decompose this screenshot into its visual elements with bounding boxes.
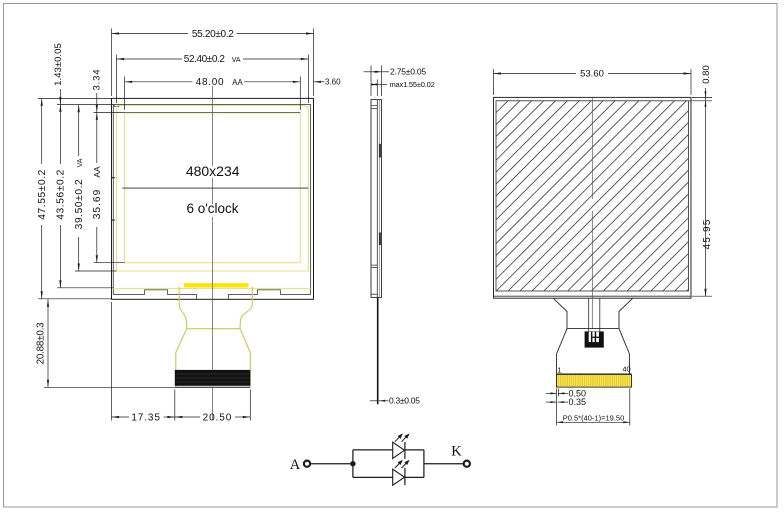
svg-text:52.40±0.2: 52.40±0.2: [184, 54, 226, 65]
svg-text:0.35: 0.35: [569, 397, 587, 407]
svg-text:2.75±0.05: 2.75±0.05: [390, 66, 426, 76]
svg-text:AA: AA: [232, 78, 243, 87]
svg-text:1.43±0.05: 1.43±0.05: [53, 43, 64, 86]
svg-text:0.3±0.05: 0.3±0.05: [389, 396, 420, 406]
svg-text:43.56±0.2: 43.56±0.2: [56, 169, 67, 220]
svg-text:35.69: 35.69: [92, 189, 103, 220]
svg-text:47.55±0.2: 47.55±0.2: [37, 169, 48, 220]
svg-text:3.60: 3.60: [325, 77, 341, 86]
svg-text:20.88±0.3: 20.88±0.3: [35, 322, 46, 364]
svg-text:P0.5*(40-1)=19.50: P0.5*(40-1)=19.50: [563, 413, 625, 422]
svg-text:A: A: [290, 457, 301, 473]
svg-text:VA: VA: [232, 57, 241, 64]
svg-text:AA: AA: [92, 166, 102, 178]
svg-text:40: 40: [622, 365, 630, 374]
svg-text:3.34: 3.34: [91, 69, 102, 91]
svg-text:48.00: 48.00: [196, 77, 225, 88]
svg-text:0.80: 0.80: [701, 65, 712, 84]
svg-text:53.60: 53.60: [580, 69, 604, 80]
svg-text:6 o'clock: 6 o'clock: [186, 201, 238, 216]
svg-text:20.50: 20.50: [203, 412, 233, 423]
svg-text:480x234: 480x234: [186, 163, 240, 179]
svg-text:45.95: 45.95: [702, 218, 713, 249]
svg-text:39.50±0.2: 39.50±0.2: [74, 179, 85, 230]
svg-text:17.35: 17.35: [131, 412, 161, 423]
svg-text:VA: VA: [77, 158, 84, 167]
svg-text:1: 1: [557, 366, 561, 375]
svg-text:55.20±0.2: 55.20±0.2: [192, 29, 234, 40]
svg-text:K: K: [451, 444, 462, 460]
svg-text:max1.55±0.02: max1.55±0.02: [390, 80, 435, 89]
